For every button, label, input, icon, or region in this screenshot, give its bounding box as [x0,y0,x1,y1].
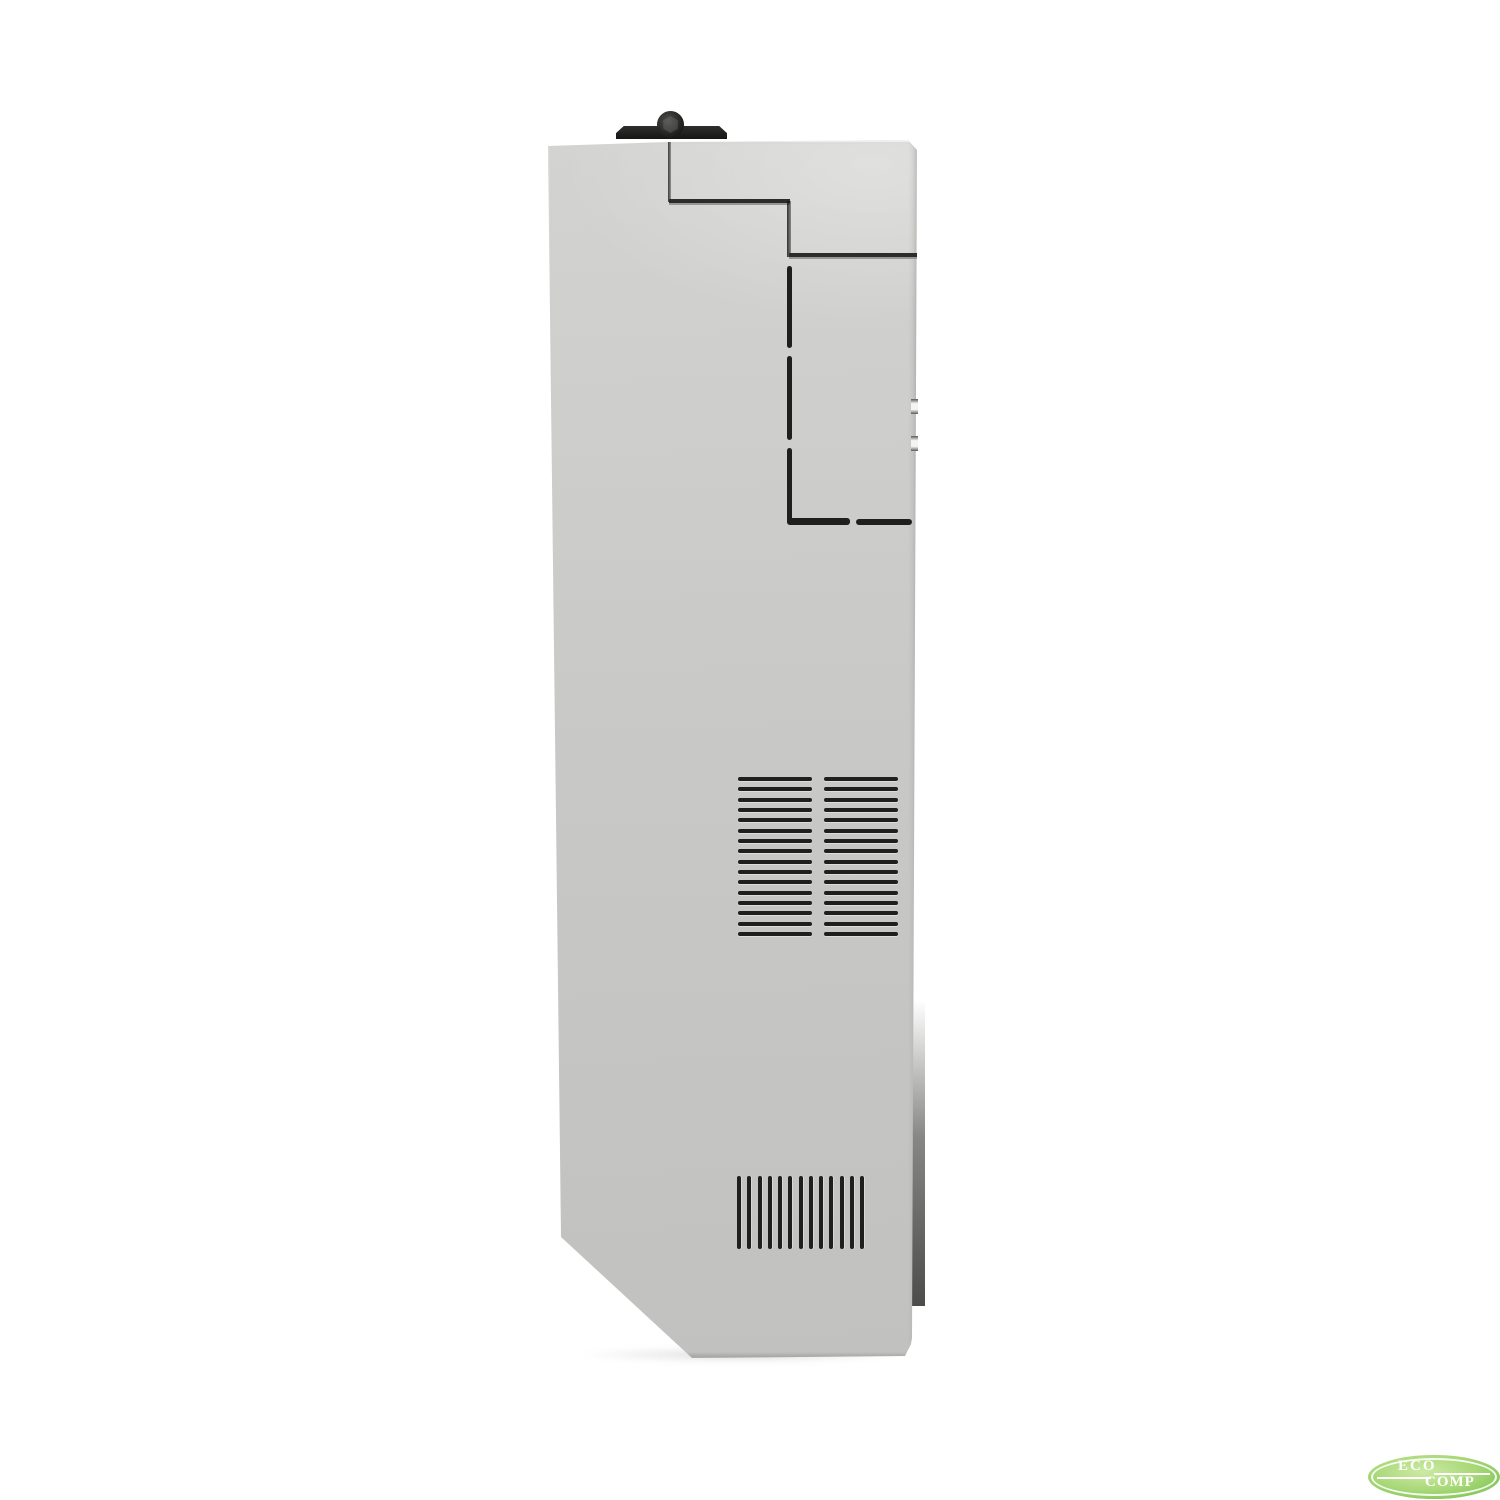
vent-slot [738,808,812,812]
vent-slot [778,1176,782,1249]
panel-seam-horizontal-1 [669,199,790,205]
vent-slot [737,1176,741,1249]
vent-grille-upper-column-2 [824,777,898,936]
vent-slot [738,860,812,864]
vent-slot [738,839,812,843]
vent-slot [840,1176,844,1249]
vent-slot [738,870,812,874]
vent-slot [824,911,898,915]
vent-slot [809,1176,813,1249]
vent-slot [824,891,898,895]
vent-slot [799,1176,803,1249]
vent-grille-upper [738,777,898,936]
vent-slot [824,860,898,864]
vent-slot [860,1176,864,1249]
vent-slot [738,787,812,791]
vent-slot [824,829,898,833]
vent-slot [824,932,898,936]
slot-cutout-1 [787,266,792,348]
vent-slot [824,808,898,812]
vent-slot [738,829,812,833]
ecocomp-logo: ECO COMP [1368,1455,1500,1499]
vent-slot [824,901,898,905]
slot-cutout-dash [856,519,912,525]
vent-slot [738,798,812,802]
vent-slot [824,777,898,781]
panel-seam-horizontal-2 [789,253,917,259]
vent-slot [850,1176,854,1249]
vent-slot [788,1176,792,1249]
edge-notch-1 [911,399,918,414]
vent-slot [738,849,812,853]
logo-text-eco: ECO [1398,1458,1437,1475]
vent-slot [738,891,812,895]
vent-slot [819,1176,823,1249]
latch-hex-screw-icon [657,111,684,138]
logo-text-comp: COMP [1425,1474,1475,1491]
vent-slot [747,1176,751,1249]
logo-underline [1377,1477,1431,1479]
vent-slot [824,818,898,822]
slot-cutout-2 [787,356,792,440]
vent-slot [768,1176,772,1249]
vent-slot [738,922,812,926]
vent-slot [824,870,898,874]
panel-seam-vertical-1 [668,142,671,202]
vent-slot [829,1176,833,1249]
rear-edge-strip [912,1000,925,1306]
vent-slot [738,901,812,905]
slot-cutout-3-foot [787,518,850,525]
vent-grille-lower [737,1176,864,1249]
vent-slot [824,787,898,791]
vent-slot [824,922,898,926]
edge-notch-2 [911,436,918,451]
vent-slot [824,839,898,843]
vent-slot [738,880,812,884]
vent-slot [824,849,898,853]
vent-slot [824,880,898,884]
panel-seam-vertical-2 [787,201,791,257]
slot-cutout-3-vertical [787,448,792,524]
vent-slot [758,1176,762,1249]
vent-grille-upper-column-1 [738,777,812,936]
photo-canvas: ECO COMP [0,0,1500,1500]
vent-slot [738,911,812,915]
vent-slot [824,798,898,802]
vent-slot [738,818,812,822]
vent-slot [738,777,812,781]
vent-slot [738,932,812,936]
